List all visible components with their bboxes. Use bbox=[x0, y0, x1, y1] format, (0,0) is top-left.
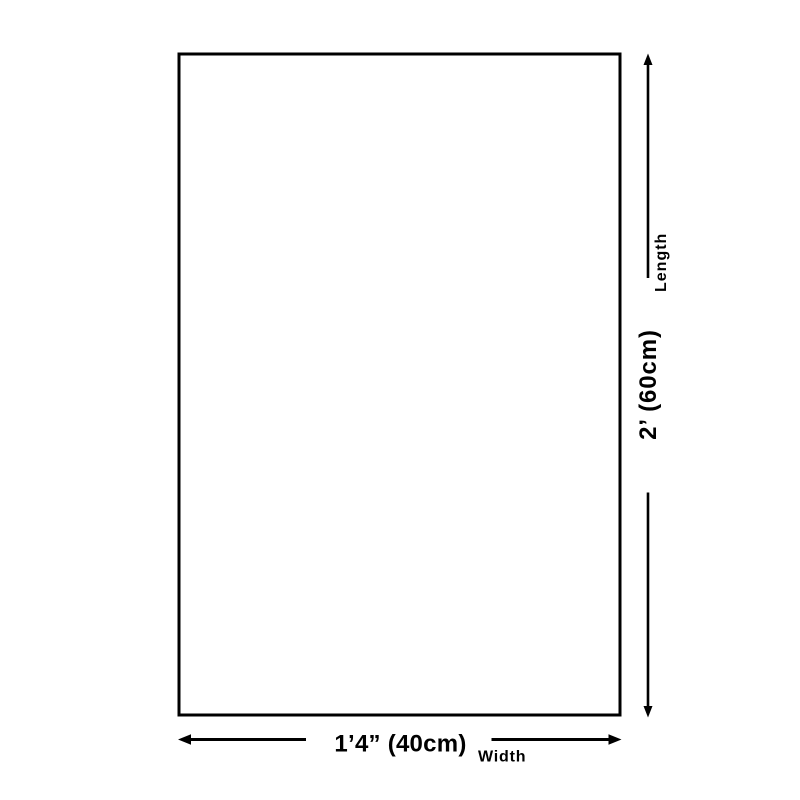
svg-text:1’4” (40cm): 1’4” (40cm) bbox=[334, 731, 466, 758]
svg-text:Width: Width bbox=[478, 749, 526, 766]
svg-text:Length: Length bbox=[653, 233, 670, 292]
svg-text:2’ (60cm): 2’ (60cm) bbox=[635, 329, 662, 440]
